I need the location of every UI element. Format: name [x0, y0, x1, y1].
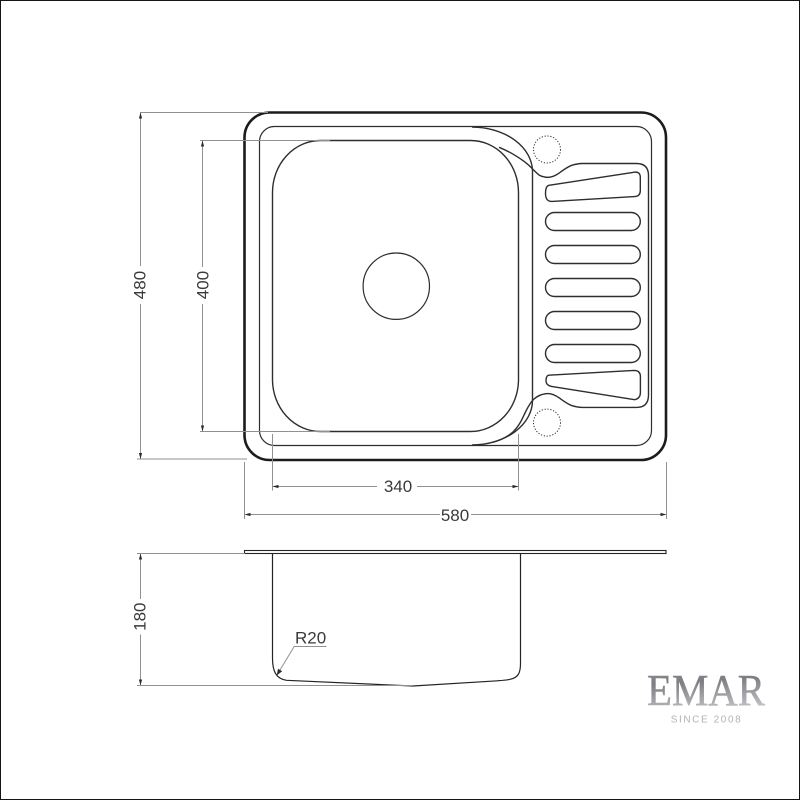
svg-text:EMAR: EMAR: [647, 666, 766, 715]
svg-text:340: 340: [384, 477, 412, 496]
svg-text:400: 400: [193, 271, 212, 299]
svg-text:R20: R20: [295, 629, 326, 648]
svg-text:580: 580: [441, 506, 469, 525]
svg-text:480: 480: [130, 271, 149, 299]
svg-text:180: 180: [130, 603, 149, 631]
svg-text:SINCE 2008: SINCE 2008: [671, 715, 743, 726]
